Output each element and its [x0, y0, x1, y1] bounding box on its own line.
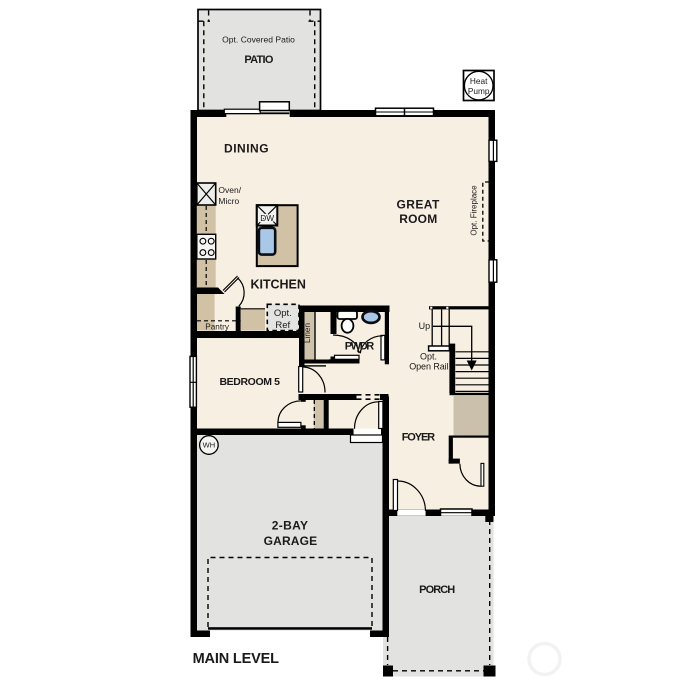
svg-text:2-BAY: 2-BAY [272, 519, 308, 533]
svg-text:GREAT: GREAT [397, 197, 440, 211]
svg-text:Opt.: Opt. [274, 308, 292, 319]
svg-text:DW: DW [260, 213, 274, 223]
svg-text:Opt.: Opt. [420, 352, 437, 362]
svg-text:ROOM: ROOM [399, 212, 437, 226]
svg-text:MAIN LEVEL: MAIN LEVEL [193, 651, 280, 667]
svg-text:FOYER: FOYER [402, 432, 435, 444]
svg-text:GARAGE: GARAGE [264, 534, 318, 548]
svg-text:Ref: Ref [275, 320, 290, 331]
svg-text:Heat: Heat [470, 76, 488, 86]
svg-text:Pantry: Pantry [205, 322, 230, 331]
svg-text:Open Rail: Open Rail [409, 361, 448, 371]
svg-text:Pump: Pump [468, 86, 490, 96]
svg-text:PATIO: PATIO [244, 54, 273, 66]
svg-text:Up: Up [419, 321, 431, 331]
svg-text:PWDR: PWDR [345, 340, 375, 352]
svg-text:Opt. Fireplace: Opt. Fireplace [470, 185, 479, 236]
svg-text:Oven/: Oven/ [218, 185, 241, 195]
svg-text:Opt. Covered Patio: Opt. Covered Patio [222, 35, 295, 45]
svg-text:PORCH: PORCH [419, 584, 455, 596]
svg-text:WH: WH [203, 441, 216, 450]
svg-text:DINING: DINING [224, 141, 268, 155]
svg-text:BEDROOM 5: BEDROOM 5 [219, 376, 280, 388]
svg-text:KITCHEN: KITCHEN [251, 278, 306, 292]
svg-text:Micro: Micro [218, 196, 239, 206]
